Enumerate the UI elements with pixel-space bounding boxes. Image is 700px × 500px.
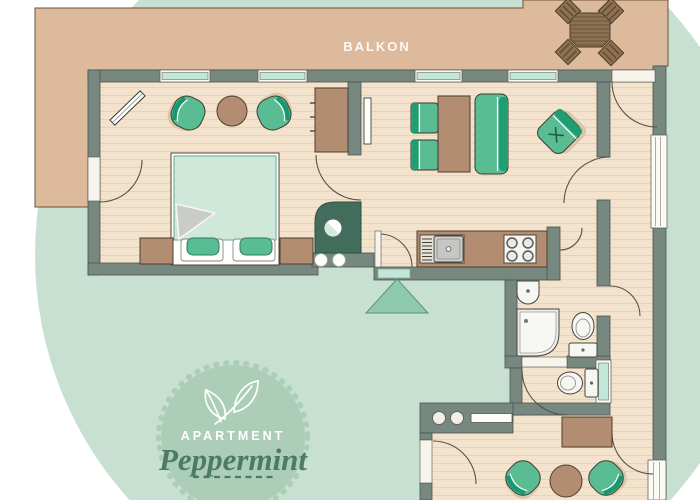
wall-mirror-panel [364,98,371,144]
window [651,135,667,228]
dining-chair [411,140,438,170]
kitchen-sink [420,235,464,263]
kitchen-counter [417,231,547,267]
nightstand [280,238,313,264]
kitchen-stovetop [504,235,536,263]
washbasin [517,281,539,304]
floorplan: BALKON [0,0,700,500]
badge-name: Peppermint [158,442,308,477]
nightstand [140,238,173,264]
sideboard [562,417,612,447]
floorplan-svg: BALKON [0,0,700,500]
window [415,70,462,82]
side-table [550,465,582,497]
balcony-label: BALKON [343,39,411,54]
bench-sofa [475,94,508,174]
window [258,70,307,82]
window [160,70,210,82]
window [648,460,666,500]
coat-hook [433,412,446,425]
shower [517,309,559,356]
coat-hook [451,412,464,425]
wardrobe [310,88,348,152]
wall-shelf [471,414,512,423]
balcony-table [570,13,610,47]
badge-top-label: APARTMENT [181,429,286,443]
dining-chair [411,103,438,133]
double-bed [171,153,279,265]
dining-table [438,96,470,172]
window [508,70,558,82]
side-table [217,96,247,126]
